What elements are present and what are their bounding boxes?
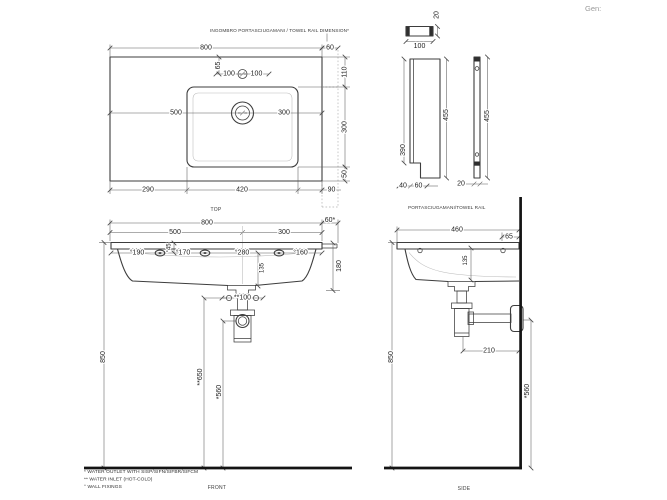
dim-label-60-front: 60* (325, 217, 336, 224)
dim-label-280: °280 (235, 249, 250, 257)
rail-top-outline (406, 27, 433, 37)
dim-label-390: 390 (400, 144, 407, 156)
dim-label-190: °190 (130, 249, 145, 257)
dim-label-110: 110 (342, 66, 349, 77)
top-view-caption: TOP (211, 207, 222, 213)
dim-label-850-front: 850 (100, 351, 107, 363)
footnote-water-outlet: * WATER OUTLET WITH SISP/SIFN/SIFBR/SIFC… (84, 469, 198, 475)
dim-label-90: 90 (328, 187, 336, 194)
fixing-hole-center (277, 252, 280, 254)
dim-label-135-front: 135 (260, 262, 266, 273)
rail-front-outline (410, 59, 440, 178)
dim-label-460: 460 (451, 227, 463, 234)
fixing-hole-center (203, 252, 206, 254)
dim-label-850-side: 850 (388, 351, 395, 363)
dim-label-rail-20: 20 (434, 11, 441, 19)
drain-pipe-side (457, 291, 467, 303)
basin-bottom-side (475, 281, 519, 282)
rail-side-cap-bottom (474, 162, 479, 166)
dim-label-45: °45 (167, 243, 173, 253)
washbasin-dimension-drawing: Gen: INGOMBRO PORTASCIUGAMANI / TOWEL RA… (0, 0, 667, 500)
basin-body-side-front (405, 249, 448, 282)
dim-label-300v: 300 (342, 121, 349, 133)
dim-label-290: 290 (142, 187, 154, 194)
dim-label-100l: 100 (223, 71, 235, 78)
dim-label-455-front: 455 (443, 109, 450, 121)
dim-label-50: 50 (342, 170, 349, 178)
dim-label-500: 500 (170, 110, 182, 117)
fixing-hole-center (158, 252, 161, 254)
dim-label-420: 420 (236, 187, 248, 194)
brand-text: Gen: (585, 4, 601, 13)
dim-label-300: 300 (278, 110, 290, 117)
countertop-outline (110, 57, 322, 181)
towel-rail-views: 20 100 390 455 40 60 455 20 PORTASCIUGAM… (399, 11, 491, 210)
dim-label-60: 60 (326, 45, 334, 52)
footnote-wall-fixings: ° WALL FIXINGS (84, 484, 122, 490)
side-view: 460 65 135 210 850 *560 SID (384, 197, 531, 492)
drain-flange-side (448, 282, 475, 292)
dim-label-40: 40 (399, 183, 407, 190)
dim-label-210: 210 (483, 348, 495, 355)
dim-label-100-inlets: **100 (234, 295, 251, 302)
rail-side-cap-top (474, 57, 479, 61)
trap-bottle-side (455, 309, 470, 337)
basin-rim-front (111, 243, 322, 250)
footnote-water-inlet: ** WATER INLET (HOT-COLD) (84, 477, 153, 483)
dim-label-170: °170 (176, 249, 191, 257)
rail-end-cap (429, 27, 432, 36)
dim-label-60b: 60 (415, 183, 423, 190)
rail-side-outline (474, 57, 480, 178)
front-view: 800 60* 500 300 °190 °170 °280 °160 °45 … (84, 217, 352, 491)
dim-label-65-side: 65 (505, 234, 513, 241)
towel-rail-edge-front (322, 244, 337, 248)
dim-label-650: **650 (197, 368, 204, 385)
dim-label-800-front: 800 (201, 220, 213, 227)
waste-pipe-horizontal (469, 314, 511, 323)
dim-label-135-side: 135 (463, 255, 469, 266)
trap-outlet-inner (238, 317, 246, 325)
dim-label-500-front: 500 (169, 229, 181, 236)
dim-label-100r: 100 (251, 71, 263, 78)
basin-rim-side (397, 243, 519, 250)
dim-label-560-side: *560 (524, 384, 531, 399)
dim-label-20-side: 20 (457, 181, 465, 188)
dim-label-rail-100: 100 (414, 43, 426, 50)
rail-end-cap (407, 27, 410, 36)
dim-label-180: 180 (336, 260, 343, 272)
dim-label-560-front: *560 (216, 385, 223, 400)
technical-drawing-sheet: Gen: INGOMBRO PORTASCIUGAMANI / TOWEL RA… (0, 0, 667, 500)
dim-label-160: °160 (293, 249, 308, 257)
dim-label-800: 800 (200, 45, 212, 52)
dim-label-300-front: 300 (278, 229, 290, 236)
rail-screw-hole-bottom (475, 153, 478, 156)
bowl-inner-line (193, 93, 292, 161)
rail-caption: PORTASCIUGAMANI/TOWEL RAIL (408, 205, 486, 210)
top-view: INGOMBRO PORTASCIUGAMANI / TOWEL RAIL DI… (110, 28, 350, 213)
dim-label-65: 65 (215, 62, 222, 70)
bowl-outline (187, 87, 298, 167)
footnotes: * WATER OUTLET WITH SISP/SIFN/SIFBR/SIFC… (84, 469, 198, 490)
drain-flange-front (228, 286, 256, 295)
side-view-caption: SIDE (458, 486, 471, 492)
dim-label-455-side: 455 (484, 110, 491, 122)
bowl-interior-line (137, 253, 302, 257)
towel-rail-note: INGOMBRO PORTASCIUGAMANI / TOWEL RAIL DI… (210, 28, 349, 33)
trap-collar-side (452, 303, 473, 309)
rail-screw-hole-top (475, 67, 479, 71)
front-view-caption: FRONT (208, 485, 226, 491)
